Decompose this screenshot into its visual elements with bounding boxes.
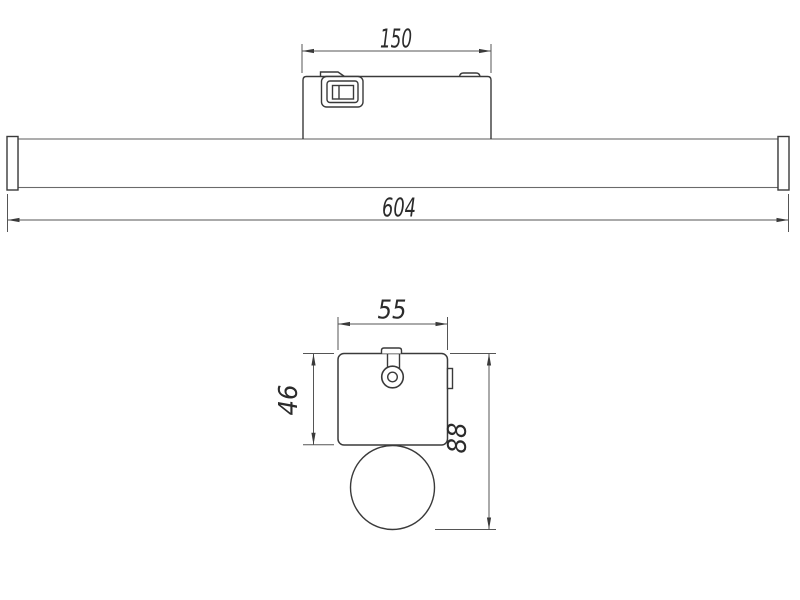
dim-150-arrow-left xyxy=(302,49,314,53)
dim-46-label: 46 xyxy=(274,385,304,416)
dim-150-label: 150 xyxy=(380,25,412,55)
hanging-clip-pin xyxy=(388,372,398,382)
dim-150: 150 xyxy=(302,25,491,74)
dim-88-arrow-top xyxy=(487,354,491,366)
power-switch-rocker xyxy=(333,86,354,100)
tube-endcap-right xyxy=(778,137,789,191)
dim-604-arrow-left xyxy=(8,218,20,222)
lamp-dimension-drawing: 150 604 55 xyxy=(0,0,800,600)
dim-604-label: 604 xyxy=(382,194,416,224)
lamp-tube-section xyxy=(351,446,435,530)
dim-604: 604 xyxy=(8,194,789,233)
dim-604-arrow-right xyxy=(777,218,789,222)
drawing-canvas: 150 604 55 xyxy=(0,0,800,600)
dim-46-arrow-top xyxy=(311,354,315,366)
dim-55-arrow-right xyxy=(436,322,448,326)
tube-endcap-left xyxy=(7,137,18,191)
dim-150-arrow-right xyxy=(479,49,491,53)
front-view: 150 604 xyxy=(7,25,789,233)
hanging-clip-tab xyxy=(382,348,402,354)
dim-88-arrow-bottom xyxy=(487,518,491,530)
dim-46: 46 xyxy=(274,354,334,445)
dim-55-arrow-left xyxy=(338,322,350,326)
side-view: 55 46 88 xyxy=(274,296,496,530)
dim-55: 55 xyxy=(338,296,448,351)
lamp-tube-front xyxy=(18,139,778,188)
switch-side-profile xyxy=(448,369,453,389)
dim-88-label: 88 xyxy=(443,423,473,454)
dim-55-label: 55 xyxy=(378,296,407,326)
dim-46-arrow-bottom xyxy=(311,433,315,445)
